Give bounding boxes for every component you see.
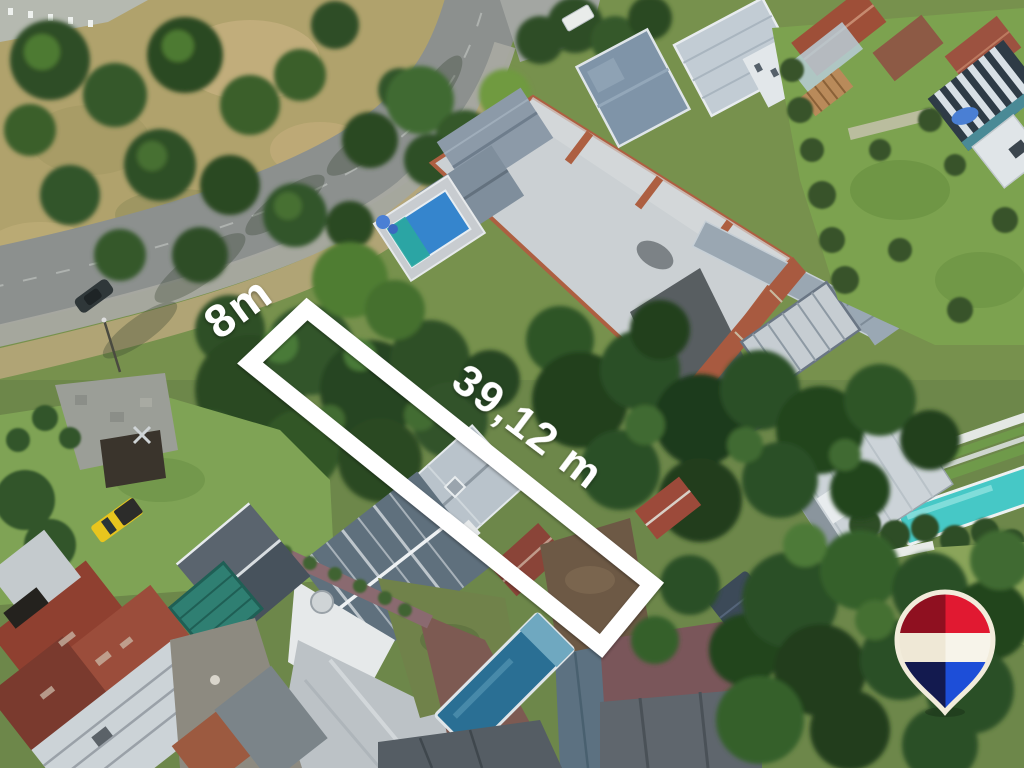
pin-flag-mid-left bbox=[897, 633, 946, 662]
house-cupola bbox=[311, 591, 333, 613]
street-lamp bbox=[102, 318, 107, 323]
dark-shed bbox=[100, 430, 166, 488]
blue-tarp-junk bbox=[376, 215, 390, 229]
aerial-photo: 8m 39,12 m bbox=[0, 0, 1024, 768]
pin-flag-mid-right bbox=[946, 633, 994, 662]
